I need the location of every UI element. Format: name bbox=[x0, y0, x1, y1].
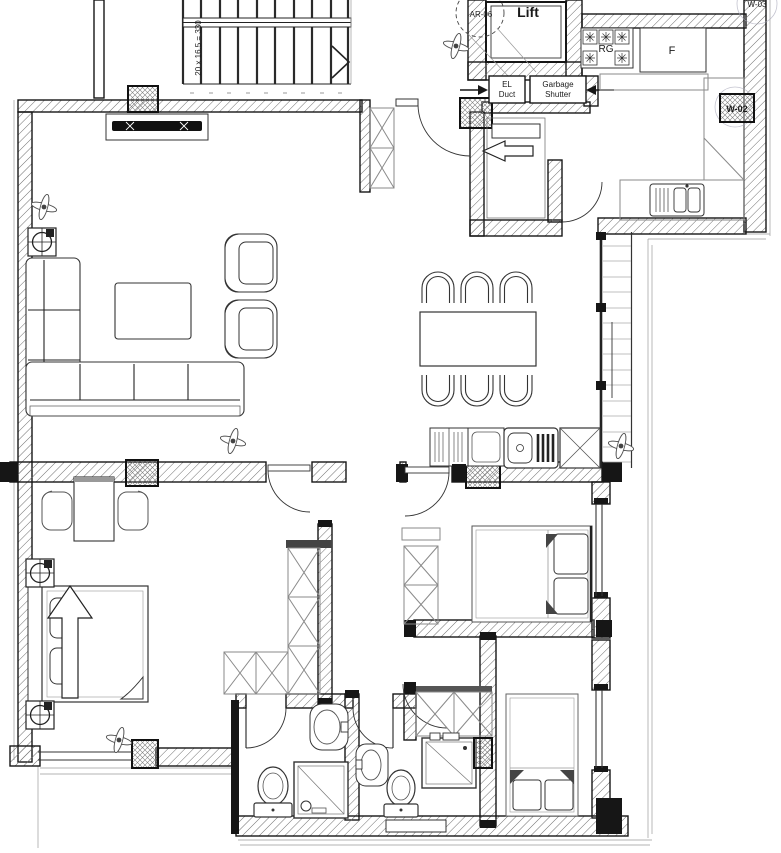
stair-side-wall bbox=[94, 0, 104, 98]
balcony-railing bbox=[596, 232, 632, 468]
el-duct-label2: Duct bbox=[499, 90, 516, 99]
wardrobe bbox=[402, 528, 440, 624]
bedroom-window bbox=[38, 752, 132, 760]
floor-plan-sheet: 20 x 16.5 = 330 Lift AR-06 EL Duct Garba… bbox=[0, 0, 781, 853]
study-desk bbox=[74, 477, 114, 541]
coffee-table bbox=[115, 283, 191, 339]
column-marker-icon bbox=[28, 228, 56, 256]
ac-unit-icon bbox=[106, 114, 208, 140]
dining-chair bbox=[422, 375, 454, 406]
bedroom2-door-arc bbox=[405, 472, 449, 516]
dining-chair bbox=[500, 272, 532, 303]
ceiling-fan-icon bbox=[608, 433, 635, 460]
shoe-cabinet bbox=[370, 108, 394, 188]
entry-door-leaf bbox=[396, 99, 418, 106]
wash-basin bbox=[310, 704, 348, 750]
ar-tag-label: AR-06 bbox=[470, 10, 493, 19]
fridge: F bbox=[640, 28, 706, 72]
kitchen-door-arc bbox=[562, 182, 602, 222]
entry-arrow-icon bbox=[483, 141, 533, 161]
armchair bbox=[225, 300, 277, 358]
living-room bbox=[26, 234, 277, 416]
column-marker-icon bbox=[26, 559, 54, 587]
bath1-door-arc bbox=[246, 708, 286, 748]
staircase: 20 x 16.5 = 330 bbox=[183, 0, 351, 93]
ceiling-fan-icon bbox=[443, 33, 470, 60]
column bbox=[128, 86, 158, 112]
dining-chair bbox=[461, 375, 493, 406]
dining-chair bbox=[461, 272, 493, 303]
kitchenette-sink bbox=[504, 428, 558, 468]
desk-chair bbox=[42, 492, 72, 530]
dish-rack bbox=[430, 428, 468, 466]
fridge-label: F bbox=[669, 45, 676, 57]
gas-range: RG bbox=[581, 28, 633, 68]
shaft-box bbox=[474, 738, 492, 768]
pillow bbox=[554, 534, 588, 574]
pillow bbox=[513, 780, 541, 810]
garbage-shutter-label2: Shutter bbox=[545, 90, 571, 99]
column-marker-icon bbox=[26, 701, 54, 729]
dining-area bbox=[420, 272, 536, 406]
shower bbox=[294, 762, 348, 818]
pillow bbox=[545, 780, 573, 810]
bedroom-bottom-bed bbox=[506, 694, 578, 816]
wardrobe bbox=[224, 540, 332, 694]
sink-cabinet bbox=[468, 428, 504, 466]
column bbox=[126, 460, 158, 486]
el-duct-label: EL bbox=[502, 80, 512, 89]
stair-direction-arrow bbox=[332, 46, 349, 78]
floor-plan-drawing: 20 x 16.5 = 330 Lift AR-06 EL Duct Garba… bbox=[0, 0, 781, 853]
duct-arrow-icon bbox=[460, 85, 488, 95]
ceiling-fan-icon bbox=[106, 727, 133, 754]
ceiling-fan-icon bbox=[31, 194, 58, 221]
foyer-cabinet bbox=[492, 124, 540, 138]
window bbox=[596, 690, 602, 768]
shower bbox=[422, 733, 476, 788]
master-bedroom bbox=[28, 477, 332, 760]
toilet bbox=[384, 770, 418, 817]
stair-note: 20 x 16.5 = 330 bbox=[194, 20, 203, 76]
columns bbox=[126, 86, 500, 768]
master-bed bbox=[28, 586, 148, 702]
toilet bbox=[254, 767, 292, 817]
ceiling-fan-icon bbox=[220, 428, 247, 455]
lift-label: Lift bbox=[517, 4, 539, 20]
desk-chair bbox=[118, 492, 148, 530]
window-tag: W-02 bbox=[715, 87, 755, 127]
svg-text:W-02: W-02 bbox=[726, 104, 747, 114]
master-door-arc bbox=[268, 470, 310, 512]
column bbox=[132, 740, 158, 768]
vent-window bbox=[386, 820, 446, 832]
pillow bbox=[554, 578, 588, 614]
bottom-bedroom bbox=[506, 690, 602, 816]
svg-text:W-03: W-03 bbox=[748, 0, 768, 9]
wash-basin bbox=[356, 744, 388, 786]
dining-chair bbox=[500, 375, 532, 406]
dining-table bbox=[420, 312, 536, 366]
range-label: RG bbox=[599, 44, 614, 55]
bedroom-middle-bed bbox=[472, 526, 592, 622]
garbage-shutter-label: Garbage bbox=[542, 80, 574, 89]
window bbox=[596, 504, 602, 596]
bathroom-middle bbox=[356, 686, 492, 832]
armchair bbox=[225, 234, 277, 292]
middle-bedroom bbox=[402, 504, 602, 624]
counter-xbox bbox=[560, 428, 600, 468]
bathroom-left bbox=[254, 704, 348, 818]
dining-chair bbox=[422, 272, 454, 303]
kitchen-sink bbox=[650, 184, 704, 216]
